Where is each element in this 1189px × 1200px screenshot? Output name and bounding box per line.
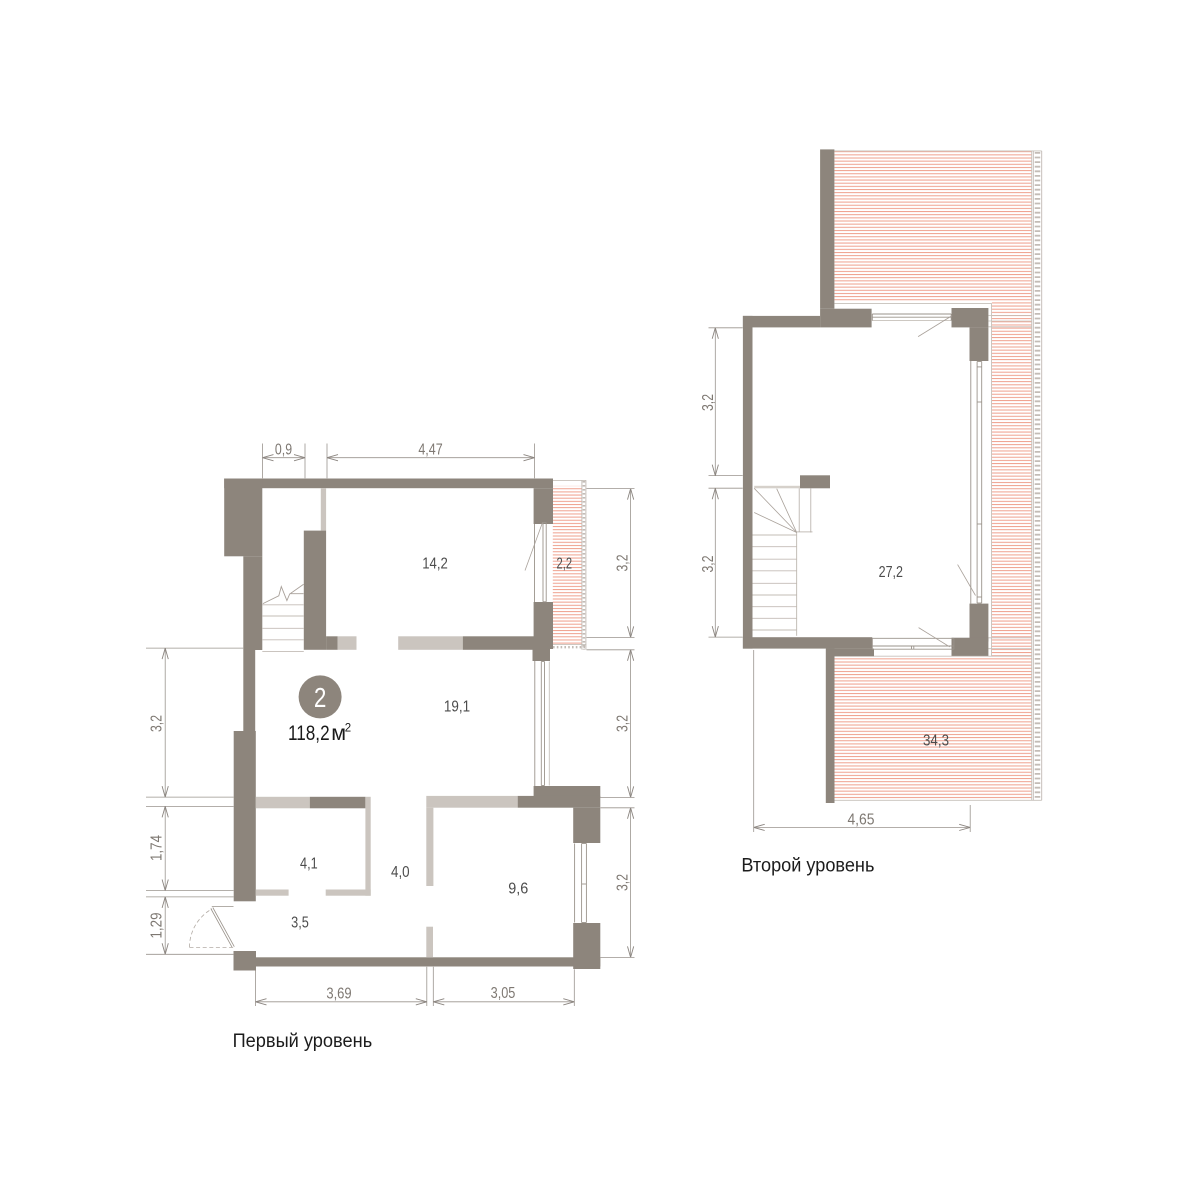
svg-text:3,69: 3,69 — [326, 986, 351, 1003]
svg-text:2,2: 2,2 — [557, 556, 573, 573]
svg-text:14,2: 14,2 — [422, 556, 448, 573]
svg-text:9,6: 9,6 — [508, 881, 528, 898]
svg-text:м: м — [331, 721, 346, 745]
svg-text:3,2: 3,2 — [700, 394, 717, 411]
svg-text:0,9: 0,9 — [275, 441, 292, 458]
svg-text:4,65: 4,65 — [847, 811, 874, 828]
svg-text:2: 2 — [345, 723, 351, 735]
svg-text:4,0: 4,0 — [391, 864, 410, 881]
svg-text:3,05: 3,05 — [491, 985, 516, 1002]
svg-text:1,29: 1,29 — [149, 913, 166, 939]
svg-text:2: 2 — [314, 682, 327, 713]
svg-text:4,47: 4,47 — [418, 441, 442, 458]
svg-text:118,2: 118,2 — [288, 721, 330, 745]
svg-text:4,1: 4,1 — [300, 855, 318, 872]
svg-text:3,2: 3,2 — [700, 556, 717, 573]
svg-text:27,2: 27,2 — [879, 564, 903, 581]
svg-text:3,2: 3,2 — [149, 715, 166, 732]
svg-text:3,2: 3,2 — [615, 874, 632, 891]
svg-text:3,5: 3,5 — [291, 915, 309, 932]
svg-text:3,2: 3,2 — [615, 715, 632, 732]
svg-text:Второй уровень: Второй уровень — [741, 855, 874, 876]
svg-text:3,2: 3,2 — [615, 555, 632, 572]
svg-text:1,74: 1,74 — [149, 835, 166, 861]
svg-text:34,3: 34,3 — [923, 733, 949, 750]
svg-text:19,1: 19,1 — [444, 699, 470, 716]
svg-text:Первый уровень: Первый уровень — [233, 1031, 373, 1052]
